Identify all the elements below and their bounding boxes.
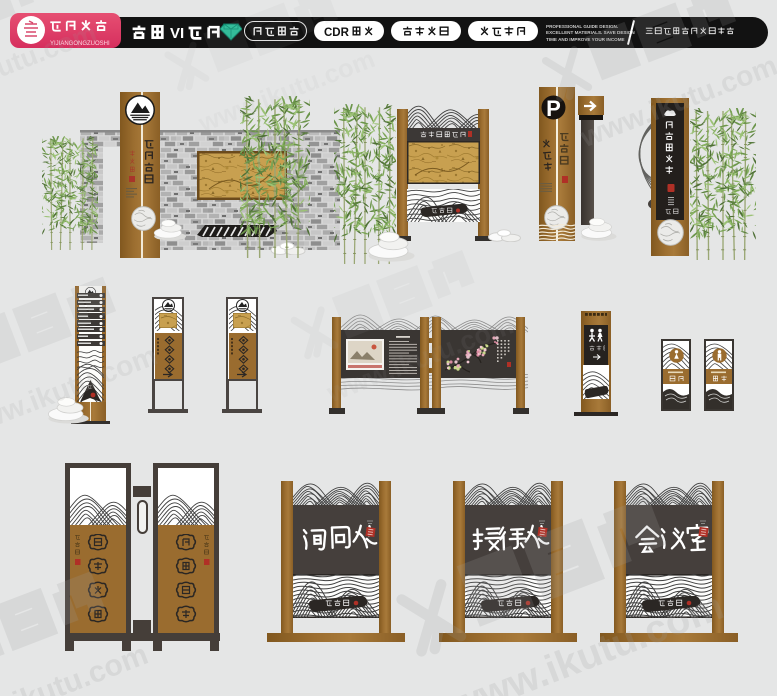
- svg-text:www.ikutu.com: www.ikutu.com: [0, 17, 101, 116]
- svg-text:www.ikutu.com: www.ikutu.com: [0, 340, 162, 445]
